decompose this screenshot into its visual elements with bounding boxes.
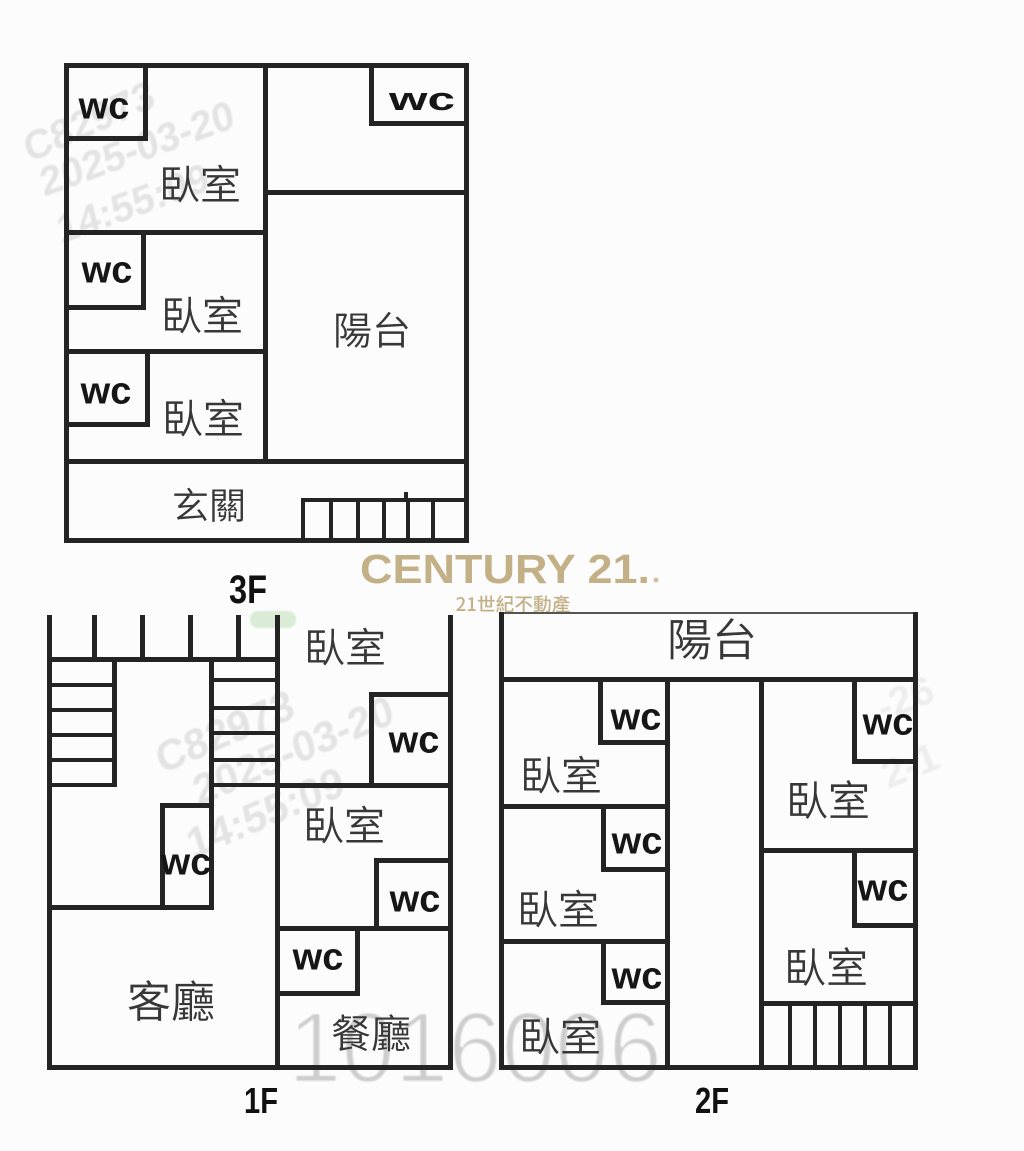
svg-text:CENTURY 21.: CENTURY 21. xyxy=(360,546,650,592)
svg-text:wc: wc xyxy=(611,820,663,862)
svg-text:3F: 3F xyxy=(229,568,267,612)
svg-text:wc: wc xyxy=(78,85,130,127)
svg-text:wc: wc xyxy=(857,867,909,909)
svg-text:wc: wc xyxy=(610,696,662,738)
svg-text:wc: wc xyxy=(81,249,133,291)
svg-text:wc: wc xyxy=(292,936,344,978)
svg-text:wc: wc xyxy=(80,370,132,412)
svg-text:wc: wc xyxy=(388,719,440,761)
svg-text:wc: wc xyxy=(387,81,455,117)
svg-text:wc: wc xyxy=(611,955,663,997)
svg-text:2-1: 2-1 xyxy=(875,735,945,797)
svg-text:1F: 1F xyxy=(244,1080,278,1121)
svg-text:wc: wc xyxy=(389,878,441,920)
svg-text:2F: 2F xyxy=(695,1080,729,1121)
svg-text:wc: wc xyxy=(862,701,914,743)
svg-text:wc: wc xyxy=(160,841,212,883)
